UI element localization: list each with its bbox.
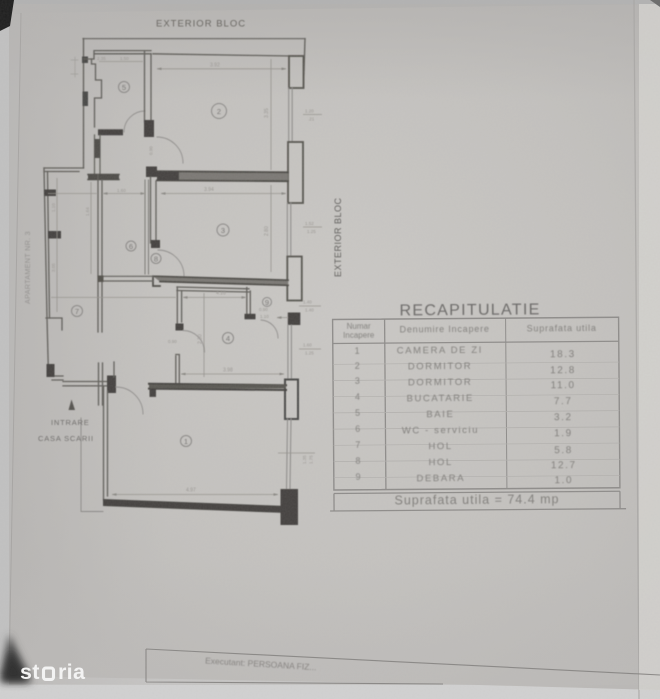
svg-text:ria: ria	[58, 660, 86, 684]
svg-text:st: st	[20, 660, 40, 684]
